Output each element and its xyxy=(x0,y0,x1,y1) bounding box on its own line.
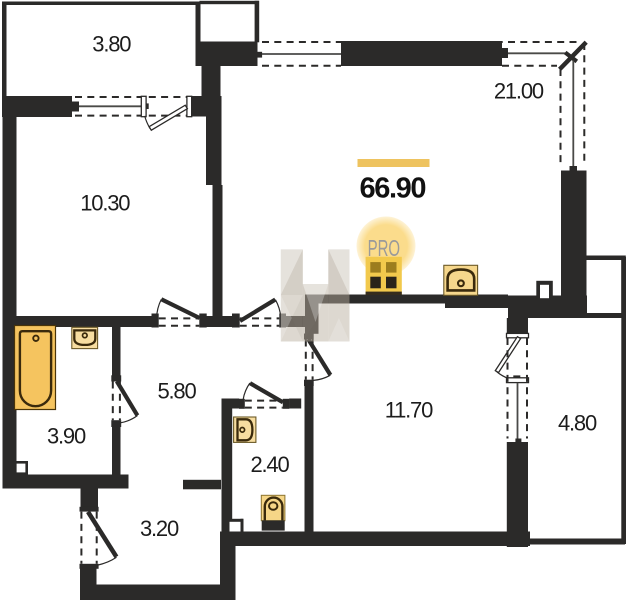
svg-text:3.20: 3.20 xyxy=(140,516,179,541)
svg-text:10.30: 10.30 xyxy=(80,191,130,216)
svg-text:11.70: 11.70 xyxy=(385,398,433,423)
svg-text:4.80: 4.80 xyxy=(558,411,597,436)
svg-text:3.80: 3.80 xyxy=(92,32,131,57)
svg-text:66.90: 66.90 xyxy=(360,173,426,205)
svg-text:5.80: 5.80 xyxy=(157,379,196,404)
svg-text:21.00: 21.00 xyxy=(494,79,544,104)
svg-text:2.40: 2.40 xyxy=(250,452,289,477)
svg-text:3.90: 3.90 xyxy=(47,424,86,449)
